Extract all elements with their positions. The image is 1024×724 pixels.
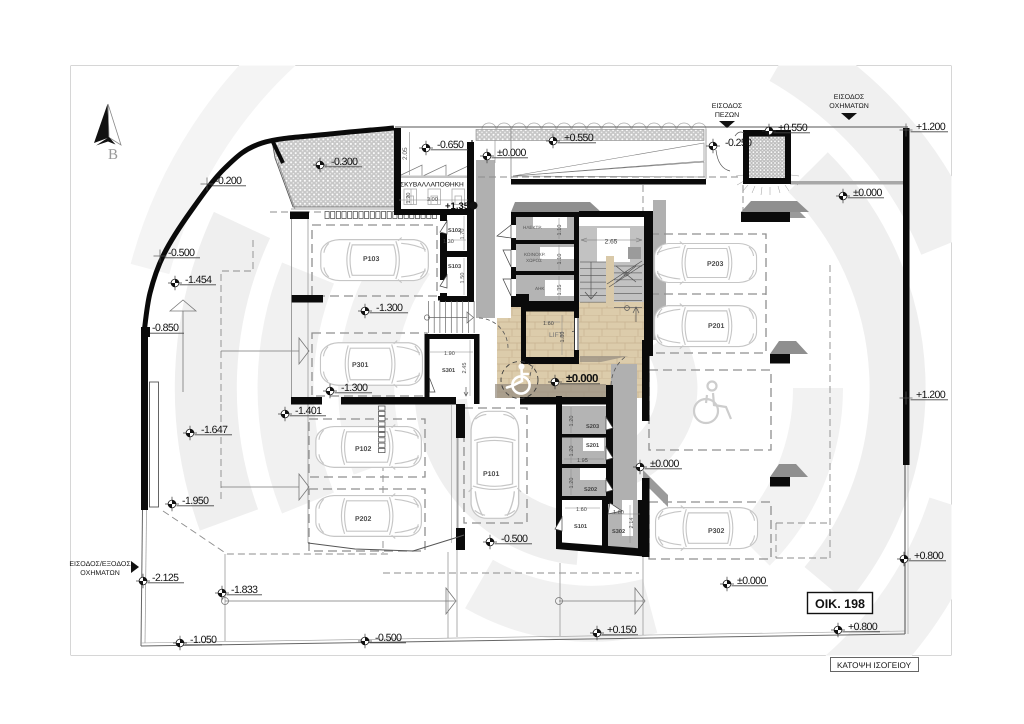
svg-text:-1.950: -1.950 <box>182 495 209 507</box>
svg-text:ΚΑΤΟΨΗ ΙΣΟΓΕΙΟΥ: ΚΑΤΟΨΗ ΙΣΟΓΕΙΟΥ <box>837 661 912 670</box>
svg-text:P302: P302 <box>708 528 724 535</box>
svg-text:+0.550: +0.550 <box>564 132 594 144</box>
svg-text:-0.500: -0.500 <box>501 533 528 545</box>
svg-text:-0.500: -0.500 <box>168 247 195 259</box>
svg-text:ΕΙΣΟΔΟΣ: ΕΙΣΟΔΟΣ <box>712 103 743 110</box>
svg-text:ΕΙΣΟΔΟΣ: ΕΙΣΟΔΟΣ <box>834 94 865 101</box>
svg-text:2.65: 2.65 <box>605 239 618 246</box>
svg-text:1.10: 1.10 <box>557 225 563 236</box>
svg-text:+0.800: +0.800 <box>848 621 878 633</box>
svg-text:S103: S103 <box>448 264 461 270</box>
svg-text:P102: P102 <box>355 446 371 453</box>
svg-text:ΕΙΣΟΔΟΣ/ΕΞΟΔΟΣ: ΕΙΣΟΔΟΣ/ΕΞΟΔΟΣ <box>69 560 131 568</box>
svg-text:-0.250: -0.250 <box>725 137 752 149</box>
svg-text:-1.300: -1.300 <box>341 382 368 394</box>
svg-text:+0.800: +0.800 <box>914 550 944 562</box>
svg-text:S201: S201 <box>586 443 599 449</box>
svg-text:S301: S301 <box>442 368 455 374</box>
svg-text:ΗΛΕΚΤΡ.: ΗΛΕΚΤΡ. <box>523 225 542 230</box>
svg-text:-0.300: -0.300 <box>331 156 358 168</box>
svg-text:-1.401: -1.401 <box>295 405 322 417</box>
svg-text:-1.833: -1.833 <box>231 584 258 596</box>
svg-text:ΟΧΗΜΑΤΩΝ: ΟΧΗΜΑΤΩΝ <box>829 103 869 110</box>
svg-text:+1.200: +1.200 <box>916 389 946 401</box>
svg-text:P203: P203 <box>707 261 723 268</box>
svg-text:S302: S302 <box>612 529 625 535</box>
svg-text:1.70: 1.70 <box>460 229 466 240</box>
svg-text:P202: P202 <box>355 516 371 523</box>
svg-text:±0.000: ±0.000 <box>650 458 679 470</box>
svg-text:±0.000: ±0.000 <box>853 187 882 199</box>
svg-text:P101: P101 <box>483 471 499 478</box>
svg-text:ΠΕΖΩΝ: ΠΕΖΩΝ <box>715 112 739 119</box>
svg-text:1.10: 1.10 <box>557 254 563 265</box>
svg-text:-0.650: -0.650 <box>437 139 464 151</box>
svg-text:ΣΚΥΒΑΛΛΑΠΟΘΗΚΗ: ΣΚΥΒΑΛΛΑΠΟΘΗΚΗ <box>400 182 464 189</box>
svg-text:S101: S101 <box>574 524 587 530</box>
svg-text:+1.35: +1.35 <box>445 201 470 212</box>
svg-text:P301: P301 <box>352 362 368 369</box>
svg-text:B: B <box>108 147 118 163</box>
svg-text:+1.200: +1.200 <box>916 121 946 133</box>
svg-text:P103: P103 <box>363 256 379 263</box>
svg-text:1.50: 1.50 <box>460 273 466 284</box>
svg-text:1.20: 1.20 <box>569 416 575 427</box>
svg-text:2.45: 2.45 <box>462 363 468 374</box>
svg-text:ΚΟΙΝΟΧΡ.: ΚΟΙΝΟΧΡ. <box>524 252 545 257</box>
svg-text:-1.050: -1.050 <box>190 634 217 646</box>
svg-text:S203: S203 <box>586 424 599 430</box>
svg-text:±0.000: ±0.000 <box>497 147 526 159</box>
svg-text:+0.150: +0.150 <box>607 624 637 636</box>
svg-text:-2.125: -2.125 <box>152 572 179 584</box>
svg-text:±0.000: ±0.000 <box>737 575 766 587</box>
svg-text:1.20: 1.20 <box>569 478 575 489</box>
svg-text:±0.000: ±0.000 <box>566 373 598 385</box>
svg-text:P201: P201 <box>708 323 724 330</box>
svg-text:1.80: 1.80 <box>560 332 566 343</box>
svg-text:ΑΗΚ: ΑΗΚ <box>535 286 545 291</box>
svg-text:-0.850: -0.850 <box>152 322 179 334</box>
svg-text:-1.647: -1.647 <box>201 424 228 436</box>
svg-text:ΧΩΡΟΣ: ΧΩΡΟΣ <box>526 258 542 263</box>
svg-text:-0.200: -0.200 <box>215 175 242 187</box>
svg-text:2.05: 2.05 <box>402 147 409 160</box>
svg-text:1.35: 1.35 <box>557 285 563 296</box>
svg-text:1.20: 1.20 <box>569 446 575 457</box>
svg-text:+0.550: +0.550 <box>778 122 808 134</box>
svg-text:-1.454: -1.454 <box>185 274 212 286</box>
svg-text:-0.500: -0.500 <box>375 632 402 644</box>
svg-text:-1.300: -1.300 <box>376 302 403 314</box>
svg-text:ΟΧΗΜΑΤΩΝ: ΟΧΗΜΑΤΩΝ <box>80 570 120 577</box>
svg-text:OIK. 198: OIK. 198 <box>815 597 865 611</box>
svg-text:1.60: 1.60 <box>613 510 624 516</box>
svg-text:S202: S202 <box>584 487 597 493</box>
